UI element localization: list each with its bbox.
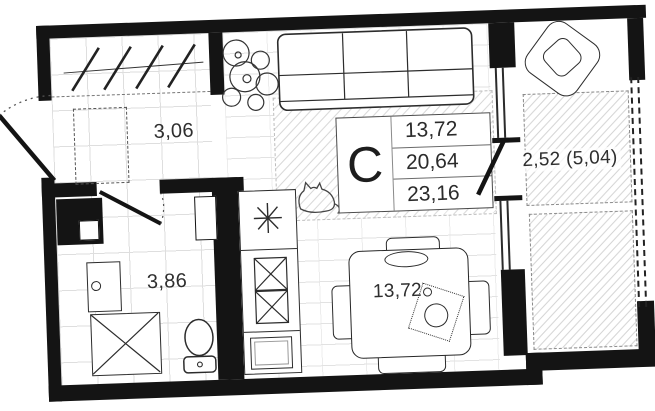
kitchen-counter	[238, 189, 302, 375]
entry-door-icon	[0, 85, 64, 197]
window-icon	[499, 201, 503, 270]
wall-niche	[194, 196, 218, 241]
wardrobe-icon	[73, 107, 130, 185]
cabinet-x-icon	[253, 256, 289, 325]
wall	[501, 269, 528, 356]
dining-area-label: 13,72	[355, 276, 440, 307]
sofa-icon	[276, 27, 475, 112]
wall	[526, 349, 655, 372]
appliance-icon	[250, 336, 293, 369]
bathroom-door-icon	[91, 177, 173, 234]
bathroom-area-label: 3,86	[127, 266, 208, 297]
shower-icon	[90, 312, 162, 376]
unit-type-badge: C	[336, 117, 393, 213]
floor-plan: C 13,72 20,64 23,16 13,72	[36, 5, 655, 402]
wall	[637, 301, 655, 362]
wall	[488, 22, 516, 68]
sink-icon	[252, 199, 283, 240]
plate-icon	[421, 300, 451, 330]
window-icon	[502, 68, 506, 138]
washing-machine-icon	[86, 261, 122, 312]
floor-plan-canvas: C 13,72 20,64 23,16 13,72	[0, 0, 655, 411]
hallway-area-label: 3,06	[133, 116, 214, 147]
cat-icon	[294, 177, 343, 221]
window-icon	[506, 201, 510, 270]
window-icon	[495, 68, 499, 138]
toilet-icon	[178, 316, 220, 377]
balcony-area-label: 2,52 (5,04)	[503, 143, 638, 176]
wall	[526, 353, 543, 386]
wall	[627, 18, 645, 81]
closet-hangers-icon	[52, 34, 210, 99]
balcony-hatch-lower	[529, 210, 638, 350]
